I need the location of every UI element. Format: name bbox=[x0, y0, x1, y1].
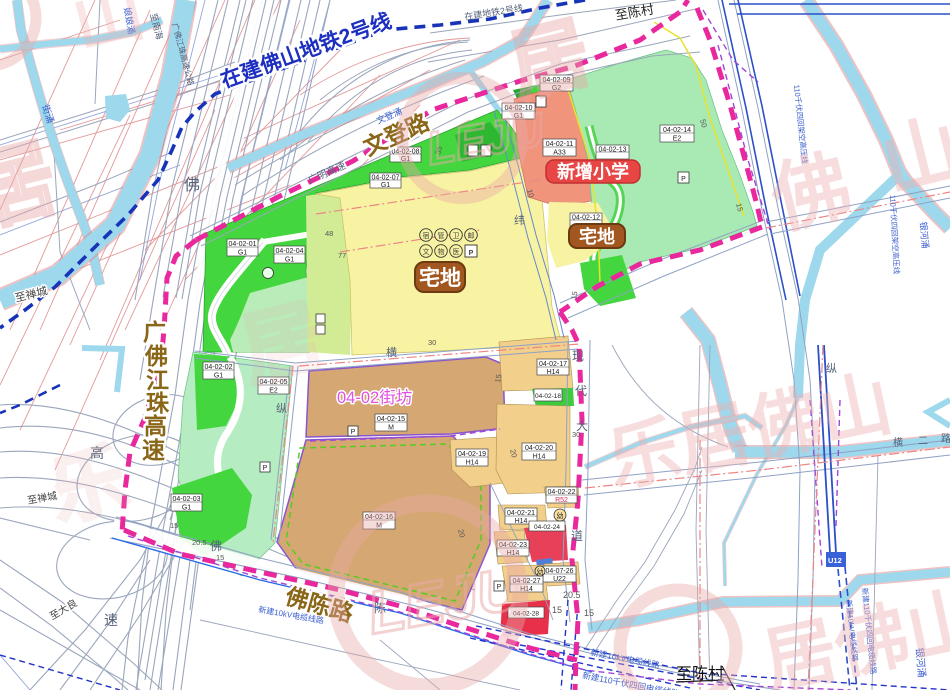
svg-text:M: M bbox=[388, 425, 394, 432]
svg-text:E2: E2 bbox=[673, 136, 682, 143]
svg-text:佛: 佛 bbox=[144, 343, 168, 369]
svg-text:G1: G1 bbox=[238, 250, 247, 257]
svg-text:15: 15 bbox=[584, 608, 594, 618]
svg-text:宅地: 宅地 bbox=[579, 226, 615, 247]
svg-text:P: P bbox=[469, 250, 474, 257]
svg-text:04-02-04: 04-02-04 bbox=[275, 248, 303, 255]
svg-text:04-02-18: 04-02-18 bbox=[535, 393, 561, 400]
svg-text:G1: G1 bbox=[182, 505, 191, 512]
svg-text:04-02-03: 04-02-03 bbox=[172, 496, 200, 503]
svg-text:邮: 邮 bbox=[468, 231, 475, 240]
svg-text:04-02-21: 04-02-21 bbox=[507, 510, 535, 517]
svg-text:G1: G1 bbox=[381, 182, 390, 189]
svg-text:管: 管 bbox=[438, 231, 445, 240]
svg-text:15: 15 bbox=[493, 374, 503, 384]
svg-text:宅地: 宅地 bbox=[419, 266, 461, 290]
svg-text:大: 大 bbox=[576, 419, 588, 433]
svg-text:A33: A33 bbox=[553, 150, 566, 157]
svg-text:卫: 卫 bbox=[453, 232, 460, 240]
svg-text:文: 文 bbox=[423, 247, 430, 256]
svg-text:04-02-11: 04-02-11 bbox=[546, 141, 574, 148]
svg-text:速: 速 bbox=[104, 612, 118, 628]
svg-text:H14: H14 bbox=[533, 454, 546, 461]
svg-text:15: 15 bbox=[216, 553, 224, 562]
svg-text:48: 48 bbox=[325, 229, 333, 238]
svg-text:宿: 宿 bbox=[423, 231, 430, 240]
svg-text:幼: 幼 bbox=[557, 511, 564, 520]
svg-text:04-02-14: 04-02-14 bbox=[663, 127, 691, 134]
svg-text:15: 15 bbox=[552, 605, 562, 615]
svg-text:H14: H14 bbox=[547, 369, 560, 376]
svg-text:速: 速 bbox=[142, 437, 165, 463]
svg-text:04-02-12: 04-02-12 bbox=[572, 215, 600, 222]
svg-text:77: 77 bbox=[338, 251, 346, 260]
svg-text:04-02-20: 04-02-20 bbox=[525, 445, 553, 452]
svg-text:高: 高 bbox=[144, 413, 167, 439]
svg-text:04-02-17: 04-02-17 bbox=[539, 361, 567, 368]
svg-text:代: 代 bbox=[575, 384, 587, 398]
svg-text:U22: U22 bbox=[553, 576, 566, 583]
svg-text:路: 路 bbox=[941, 432, 950, 445]
svg-text:R52: R52 bbox=[555, 497, 568, 504]
svg-text:P: P bbox=[351, 429, 356, 436]
svg-text:04-02-22: 04-02-22 bbox=[547, 489, 575, 496]
svg-text:04-02街坊: 04-02街坊 bbox=[337, 388, 412, 407]
svg-text:20.5: 20.5 bbox=[192, 538, 207, 547]
svg-text:04-02-01: 04-02-01 bbox=[228, 241, 256, 248]
svg-text:20.5: 20.5 bbox=[563, 590, 581, 600]
svg-text:04-02-19: 04-02-19 bbox=[458, 451, 486, 458]
svg-text:04-02-13: 04-02-13 bbox=[598, 147, 626, 154]
svg-text:U12: U12 bbox=[828, 556, 842, 565]
svg-text:道: 道 bbox=[571, 529, 583, 543]
svg-text:广: 广 bbox=[143, 319, 166, 345]
svg-text:新增小学: 新增小学 bbox=[557, 161, 629, 182]
svg-text:横: 横 bbox=[386, 345, 397, 359]
svg-text:P: P bbox=[263, 465, 268, 472]
svg-text:佛: 佛 bbox=[210, 539, 222, 553]
svg-text:04-02-24: 04-02-24 bbox=[534, 524, 560, 531]
svg-text:15: 15 bbox=[170, 521, 178, 530]
svg-text:G1: G1 bbox=[285, 257, 294, 264]
svg-text:现: 现 bbox=[572, 349, 584, 363]
svg-text:30: 30 bbox=[428, 338, 436, 347]
svg-text:P: P bbox=[681, 176, 686, 183]
svg-text:二: 二 bbox=[918, 436, 928, 447]
svg-text:医: 医 bbox=[453, 248, 460, 256]
svg-text:15: 15 bbox=[569, 291, 579, 301]
svg-text:纬: 纬 bbox=[514, 214, 525, 227]
svg-text:H14: H14 bbox=[515, 518, 528, 525]
svg-text:佛: 佛 bbox=[184, 176, 200, 194]
svg-text:物: 物 bbox=[438, 247, 445, 256]
svg-text:04-02-02: 04-02-02 bbox=[204, 364, 232, 371]
svg-text:纵: 纵 bbox=[276, 402, 287, 415]
svg-text:04-02-07: 04-02-07 bbox=[371, 175, 399, 182]
svg-text:幼: 幼 bbox=[537, 567, 544, 576]
svg-text:04-07-26: 04-07-26 bbox=[545, 568, 573, 575]
svg-text:H14: H14 bbox=[466, 460, 479, 467]
svg-text:G1: G1 bbox=[214, 373, 223, 380]
svg-text:04-02-15: 04-02-15 bbox=[377, 416, 405, 423]
